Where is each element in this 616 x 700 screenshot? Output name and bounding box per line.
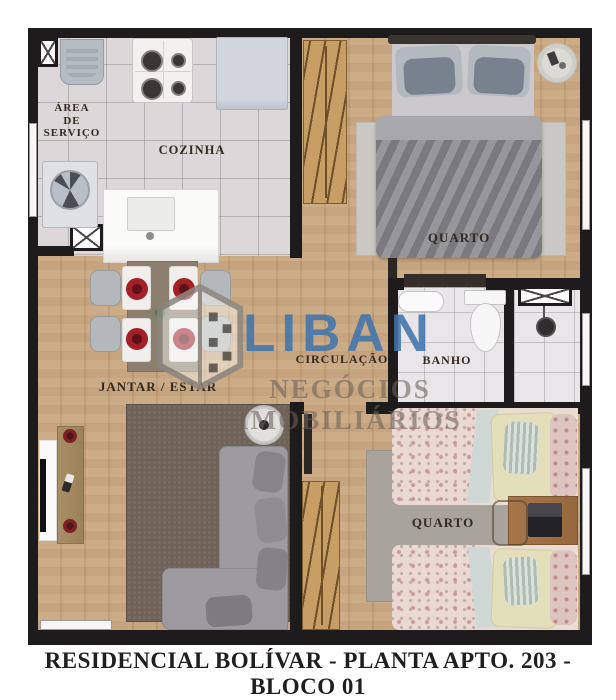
wardrobe xyxy=(303,40,347,204)
laundry-sink xyxy=(60,39,104,85)
dining-chair xyxy=(90,316,121,352)
label-kitchen: COZINHA xyxy=(142,143,242,157)
wall-living-bedroom2 xyxy=(290,402,302,630)
duct-kitchen xyxy=(70,224,103,251)
dinner-plate xyxy=(124,276,150,302)
bed-pillow-accent xyxy=(473,57,525,96)
kitchen-counter xyxy=(103,189,219,263)
bed-pillow-accent xyxy=(403,57,456,96)
floorplan: ÁREA DE SERVIÇO COZINHA QUARTO CIRCULAÇÃ… xyxy=(0,0,616,700)
bed-pillow-striped xyxy=(503,556,539,606)
label-service-area: ÁREA DE SERVIÇO xyxy=(27,102,117,140)
wall-kitchen-bedroom1 xyxy=(290,28,302,258)
tv xyxy=(40,459,46,532)
label-bedroom2: QUARTO xyxy=(393,516,493,531)
window-living xyxy=(40,620,112,630)
burner xyxy=(171,53,186,68)
decor-item xyxy=(559,62,566,69)
wardrobe-rail xyxy=(321,486,323,624)
window-bathroom xyxy=(582,313,590,386)
sofa-pillow xyxy=(251,450,286,494)
window-bedroom2 xyxy=(582,468,590,575)
bed-pillow-floral xyxy=(550,414,577,499)
bed-headboard xyxy=(388,35,536,44)
dining-chair xyxy=(90,270,121,306)
fridge xyxy=(216,37,288,110)
door-bathroom xyxy=(404,274,486,287)
wall-kitchen-stub xyxy=(38,246,74,256)
flower-vase xyxy=(63,429,77,443)
brand-wordmark: LIBAN xyxy=(243,303,435,364)
burner xyxy=(141,50,163,72)
floral-duvet xyxy=(392,545,480,630)
flower-vase xyxy=(63,519,77,533)
window-bedroom1 xyxy=(582,120,590,230)
bed-pillow-floral xyxy=(550,550,577,625)
washer-lid xyxy=(50,170,90,210)
plan-caption: RESIDENCIAL BOLÍVAR - PLANTA APTO. 203 -… xyxy=(0,648,616,700)
laptop xyxy=(528,503,562,537)
stove xyxy=(132,38,193,103)
laundry-sink-basin xyxy=(66,47,98,77)
duct-service xyxy=(38,38,58,67)
shower-head xyxy=(536,317,556,337)
brand-tagline: NEGÓCIOS IMOBILIÁRIOS xyxy=(160,374,540,436)
desk-chair xyxy=(492,500,528,546)
single-bed xyxy=(392,545,578,630)
label-bedroom1: QUARTO xyxy=(409,231,509,246)
outer-wall-bottom xyxy=(28,630,592,645)
sofa-pillow xyxy=(255,547,289,591)
counter-sink xyxy=(127,197,175,231)
wardrobe-rail xyxy=(325,46,327,198)
dinner-plate xyxy=(124,326,150,352)
washing-machine xyxy=(42,161,98,228)
burner xyxy=(171,81,186,96)
burner xyxy=(141,78,163,100)
duct-shower xyxy=(518,286,572,306)
sofa-pillow xyxy=(254,497,288,544)
sofa-pillow xyxy=(205,594,253,627)
counter-faucet xyxy=(146,232,154,240)
wardrobe xyxy=(302,481,340,630)
